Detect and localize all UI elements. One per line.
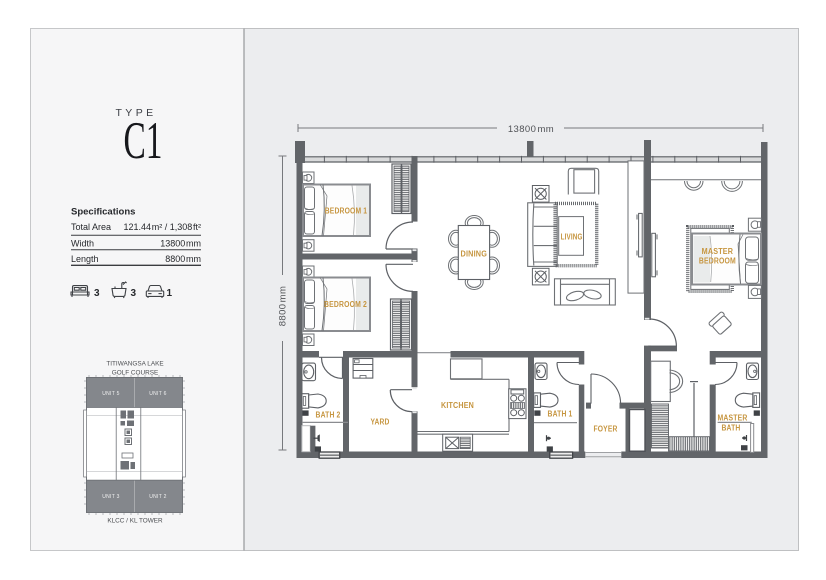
svg-text:BATH 2: BATH 2 xyxy=(316,411,341,420)
svg-text:BEDROOM: BEDROOM xyxy=(699,256,736,265)
svg-text:FOYER: FOYER xyxy=(594,424,618,433)
svg-text:LIVING: LIVING xyxy=(561,232,583,241)
svg-text:MASTER: MASTER xyxy=(702,247,734,256)
svg-text:DINING: DINING xyxy=(461,249,488,258)
svg-text:KITCHEN: KITCHEN xyxy=(441,401,474,410)
svg-text:8800 mm: 8800 mm xyxy=(278,286,289,327)
svg-text:13800 mm: 13800 mm xyxy=(508,124,554,135)
svg-text:BATH: BATH xyxy=(722,424,741,433)
svg-text:1: 1 xyxy=(167,288,173,299)
svg-text:3: 3 xyxy=(94,288,100,299)
svg-text:UNIT 5: UNIT 5 xyxy=(102,391,120,397)
svg-text:8800 mm: 8800 mm xyxy=(165,254,201,264)
svg-text:UNIT 3: UNIT 3 xyxy=(102,494,120,500)
svg-text:UNIT 2: UNIT 2 xyxy=(149,494,167,500)
svg-text:BATH 1: BATH 1 xyxy=(548,409,573,418)
svg-text:UNIT 6: UNIT 6 xyxy=(149,391,167,397)
svg-text:Total Area: Total Area xyxy=(71,222,111,232)
svg-text:TITIWANGSA LAKE: TITIWANGSA LAKE xyxy=(106,361,163,368)
svg-text:Length: Length xyxy=(71,254,99,264)
svg-text:KLCC / KL TOWER: KLCC / KL TOWER xyxy=(107,518,163,525)
svg-text:BEDROOM 2: BEDROOM 2 xyxy=(324,300,367,309)
svg-text:GOLF COURSE: GOLF COURSE xyxy=(112,370,159,377)
svg-text:121.44 m² / 1,308 ft²: 121.44 m² / 1,308 ft² xyxy=(123,222,201,232)
svg-text:Specifications: Specifications xyxy=(71,207,135,218)
svg-text:C1: C1 xyxy=(124,112,163,170)
svg-text:MASTER: MASTER xyxy=(718,413,748,422)
svg-text:13800 mm: 13800 mm xyxy=(160,239,201,249)
svg-text:3: 3 xyxy=(131,288,137,299)
svg-text:BEDROOM 1: BEDROOM 1 xyxy=(325,207,368,216)
svg-text:YARD: YARD xyxy=(371,418,390,427)
svg-text:Width: Width xyxy=(71,239,94,249)
